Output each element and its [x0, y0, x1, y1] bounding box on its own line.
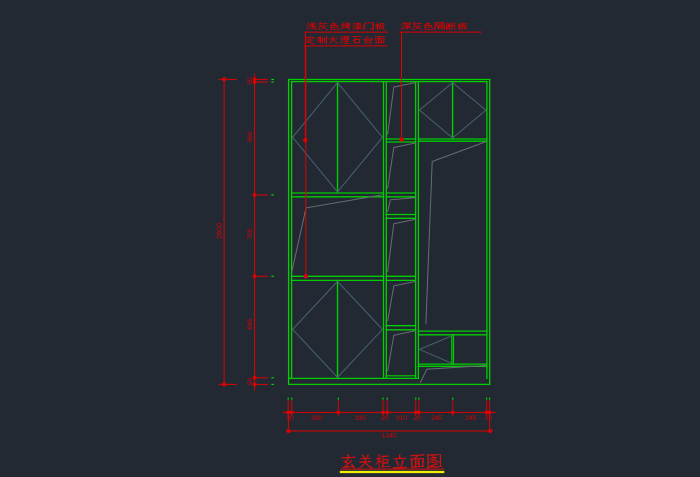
svg-text:330: 330 [311, 415, 322, 422]
svg-text:245: 245 [431, 415, 442, 422]
svg-text:210: 210 [396, 415, 407, 422]
svg-text:245: 245 [465, 415, 476, 422]
svg-text:50: 50 [247, 377, 254, 385]
svg-text:20: 20 [485, 415, 493, 422]
svg-text:20: 20 [286, 415, 294, 422]
svg-text:960: 960 [247, 131, 254, 142]
svg-text:700: 700 [247, 228, 254, 239]
svg-text:330: 330 [355, 415, 366, 422]
svg-text:1440: 1440 [382, 432, 397, 439]
svg-text:20: 20 [381, 415, 389, 422]
svg-text:50: 50 [247, 77, 254, 85]
svg-text:20: 20 [414, 415, 422, 422]
svg-text:2600: 2600 [214, 223, 223, 239]
svg-text:845: 845 [247, 318, 254, 329]
